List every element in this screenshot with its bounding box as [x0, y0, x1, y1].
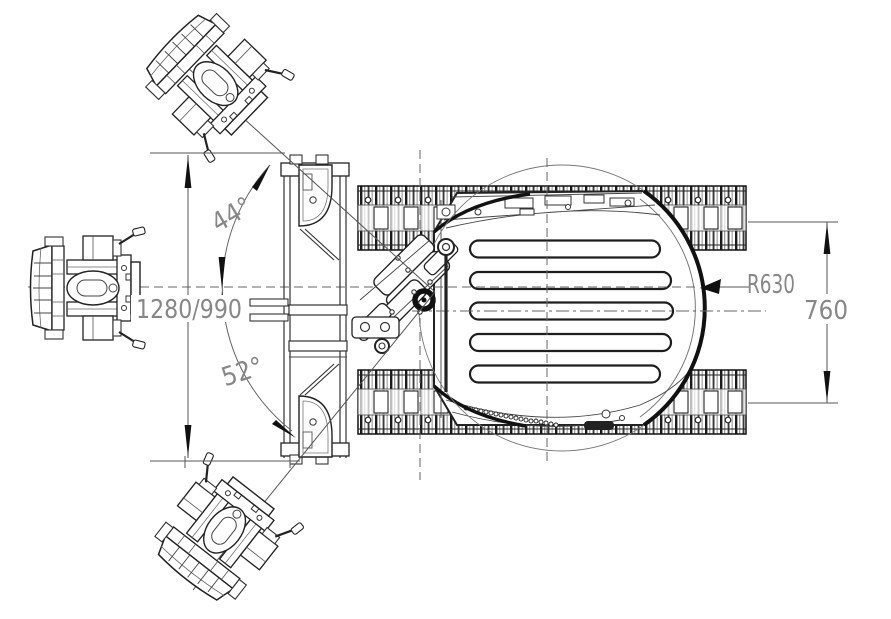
attachment-position-lowered [138, 451, 305, 617]
rear-radius-label: R630 [747, 270, 795, 300]
overall-width-label: 1280/990 [136, 295, 242, 325]
drawing-canvas: 1280/990 44° 52° R630 760 [0, 0, 891, 619]
lower-swing-angle-label: 52° [218, 352, 267, 394]
arc-arrow-mid-up [219, 257, 226, 289]
track-span-label: 760 [804, 296, 848, 326]
fork-bar-lower [250, 314, 288, 321]
fork-bar-upper [250, 299, 288, 306]
arc-arrow-upper [252, 165, 270, 191]
dimension-track-span: 760 [748, 222, 851, 403]
dimension-rear-radius: R630 [700, 270, 795, 300]
machine-top-view-drawing: 1280/990 44° 52° R630 760 [0, 0, 891, 619]
upper-swing-angle-label: 44° [206, 192, 257, 239]
attachment-position-raised [128, 0, 296, 164]
dimension-overall-width: 1280/990 [131, 153, 300, 468]
chassis-frame [250, 155, 349, 464]
attachment-position-middle [31, 227, 146, 350]
